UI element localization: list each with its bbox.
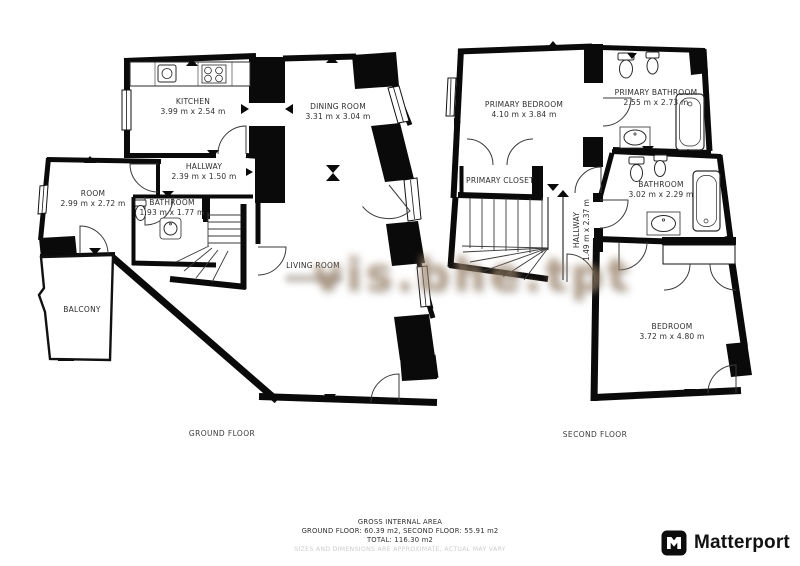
ground-floor-caption: GROUND FLOOR (152, 429, 292, 438)
room-dims: 1.49 m x 2.37 m (582, 180, 592, 280)
floorplan-page: KITCHEN 3.99 m x 2.54 m DINING ROOM 3.31… (0, 0, 800, 566)
floorplan-drawing (0, 0, 800, 566)
bathroom-bathtub-icon (693, 171, 720, 231)
second-floor-windows (446, 78, 456, 116)
matterport-logo-text: Matterport (694, 532, 790, 554)
bedroom-closet (663, 245, 736, 290)
gross-internal-area-title: GROSS INTERNAL AREA (0, 518, 800, 527)
kitchen-sink-icon (158, 65, 176, 82)
obscured-dimension-text (285, 274, 343, 283)
balcony-outline (39, 255, 113, 360)
gf-bathroom-sink-icon (160, 218, 181, 239)
room-name: HALLWAY (572, 180, 582, 280)
stove-icon (202, 65, 226, 83)
second-floor-plan (446, 41, 752, 401)
matterport-branding: Matterport (661, 530, 790, 556)
ground-floor-plan (38, 52, 437, 403)
primary-bathroom-bidet-icon (646, 52, 659, 74)
matterport-logo-icon (661, 530, 687, 556)
bathroom-sink-icon (647, 212, 680, 235)
gf-stairs (176, 212, 241, 282)
primary-bathroom-sink-icon (620, 127, 650, 148)
room-label-hallway-sf: HALLWAY 1.49 m x 2.37 m (572, 180, 594, 280)
bathroom-toilet-icon (629, 157, 644, 182)
bathroom-bidet-icon (654, 155, 667, 177)
gf-toilet-icon (135, 200, 146, 221)
second-floor-caption: SECOND FLOOR (525, 430, 665, 439)
primary-bathroom-bathtub-icon (676, 94, 704, 150)
